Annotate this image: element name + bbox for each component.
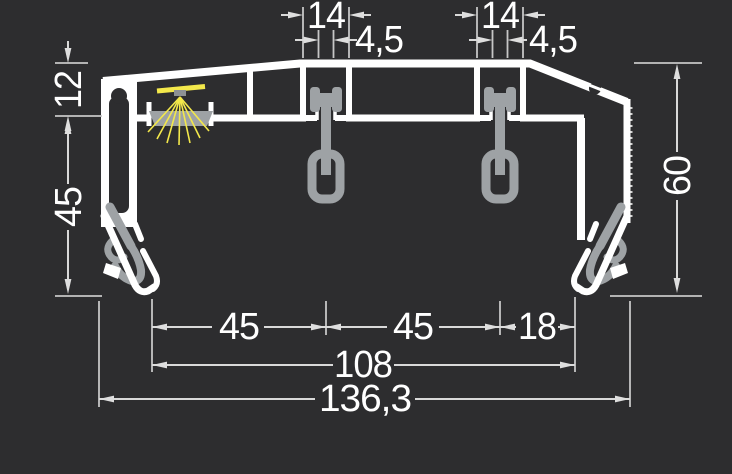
dim-bottom-span-left: 45 xyxy=(219,306,259,348)
technical-drawing-canvas: 14 4,5 14 4,5 12 45 60 45 45 18 108 136,… xyxy=(0,0,732,474)
led-chip xyxy=(174,90,186,96)
dim-left-upper-depth: 12 xyxy=(48,71,90,109)
profile-cross-section xyxy=(101,64,632,292)
dim-top-left-slot-opening: 4,5 xyxy=(355,19,403,61)
dim-bottom-span-mid: 45 xyxy=(393,306,433,348)
curtain-glider-left xyxy=(310,87,342,199)
dim-left-side-height: 45 xyxy=(48,187,90,227)
top-plate xyxy=(103,64,627,103)
dim-bottom-overall-width: 136,3 xyxy=(319,378,411,420)
dim-top-left-slot-width: 14 xyxy=(307,0,346,37)
led-module xyxy=(148,87,213,146)
dim-top-right-slot-opening: 4,5 xyxy=(529,19,577,61)
dim-right-total-height: 60 xyxy=(657,156,699,196)
dim-bottom-span-right: 18 xyxy=(518,306,556,348)
dim-top-right-slot-width: 14 xyxy=(481,0,520,37)
curtain-glider-right xyxy=(484,87,516,199)
